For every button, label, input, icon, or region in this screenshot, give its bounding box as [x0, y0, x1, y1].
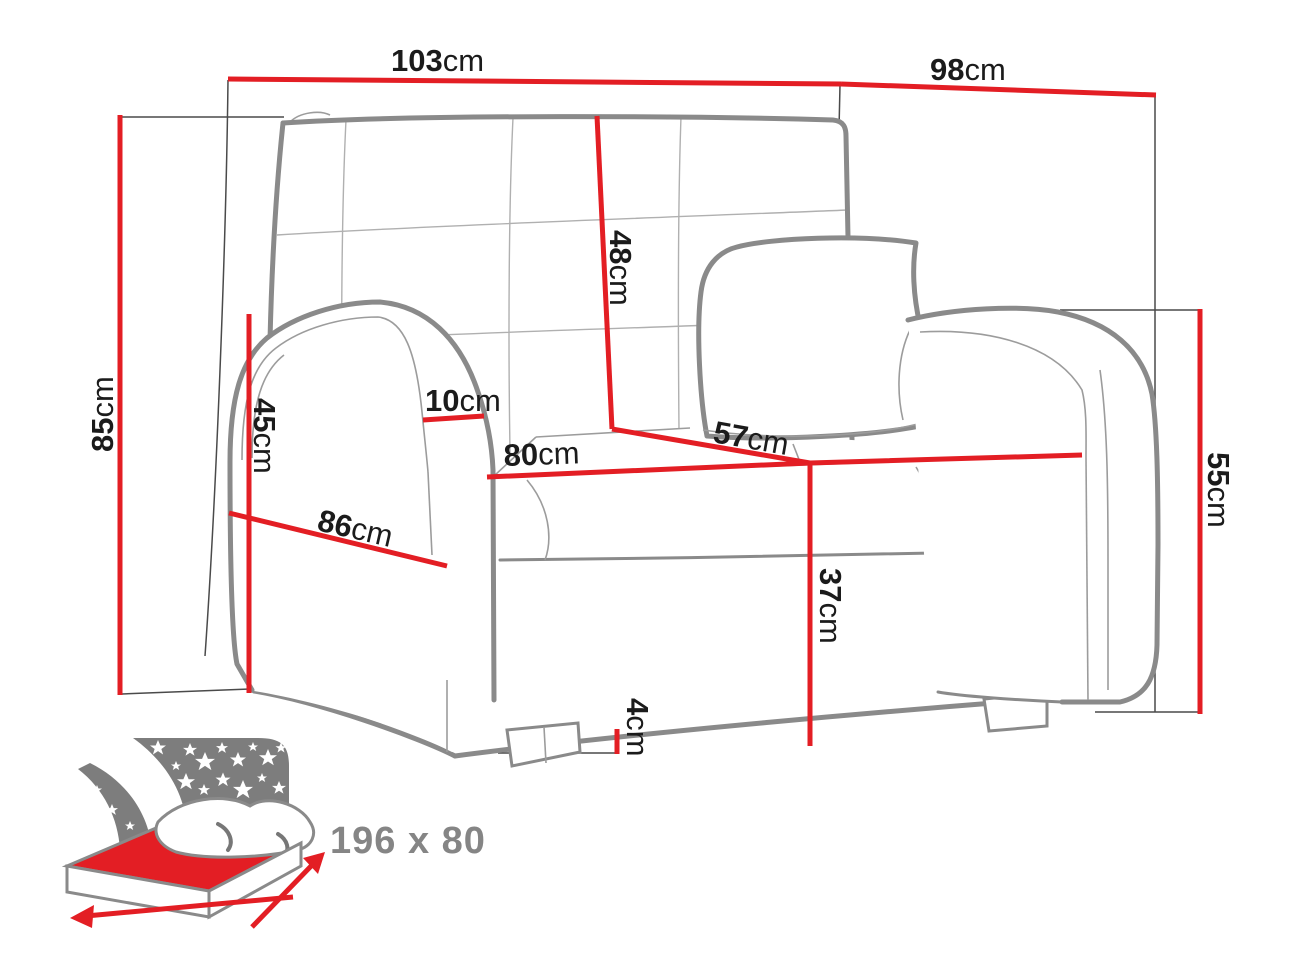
dimension-unit: cm — [443, 43, 484, 78]
star-icon — [153, 807, 164, 817]
star-icon — [141, 779, 155, 792]
dimension-unit: cm — [247, 432, 282, 473]
dimension-number: 80 — [503, 437, 539, 473]
sofa-drawing — [230, 112, 1158, 766]
dimension-label-total-height: 85cm — [85, 376, 120, 452]
dimension-unit: cm — [745, 420, 792, 462]
dimension-number: 37 — [813, 568, 848, 602]
dimension-unit: cm — [459, 383, 500, 418]
dimension-label-armrest-width: 10cm — [425, 383, 501, 418]
dimension-unit: cm — [85, 376, 120, 417]
dimension-unit: cm — [537, 435, 580, 471]
dimension-number: 98 — [930, 52, 964, 87]
dimension-number: 55 — [1201, 452, 1236, 486]
dimension-unit: cm — [603, 264, 638, 305]
sleeping-area-label: 196 x 80 — [330, 820, 486, 862]
diagram-svg: 103cm 98cm 85cm 48cm 45cm 10cm 80cm 57cm… — [0, 0, 1307, 980]
dimension-unit: cm — [620, 715, 655, 756]
dimension-unit: cm — [813, 602, 848, 643]
dimension-number: 85 — [85, 418, 120, 452]
dimension-label-seat-width: 80cm — [503, 435, 580, 473]
sleep-function-icon — [67, 738, 325, 928]
dimension-label-total-width: 103cm — [391, 43, 484, 78]
dimension-label-armrest-right-height: 55cm — [1201, 452, 1236, 528]
star-icon — [163, 787, 173, 796]
dimension-unit: cm — [964, 52, 1005, 87]
dimension-number: 4 — [620, 698, 655, 716]
sofa-dimension-diagram: 103cm 98cm 85cm 48cm 45cm 10cm 80cm 57cm… — [0, 0, 1307, 980]
dimension-unit: cm — [1201, 486, 1236, 527]
dimension-label-armrest-front-height: 45cm — [247, 398, 282, 474]
right-armrest — [908, 308, 1158, 702]
dimension-label-backrest-height: 48cm — [603, 230, 638, 306]
dimension-label-leg-height: 4cm — [620, 698, 655, 757]
dimension-number: 103 — [391, 43, 443, 78]
dimension-line-103 — [228, 79, 841, 84]
dimension-label-total-depth: 98cm — [930, 52, 1006, 87]
dimension-number: 48 — [603, 230, 638, 264]
pillow — [699, 238, 930, 438]
star-icon — [135, 757, 146, 767]
dimension-number: 10 — [425, 383, 459, 418]
dimension-label-seat-height: 37cm — [813, 568, 848, 644]
dimension-number: 45 — [247, 398, 282, 432]
